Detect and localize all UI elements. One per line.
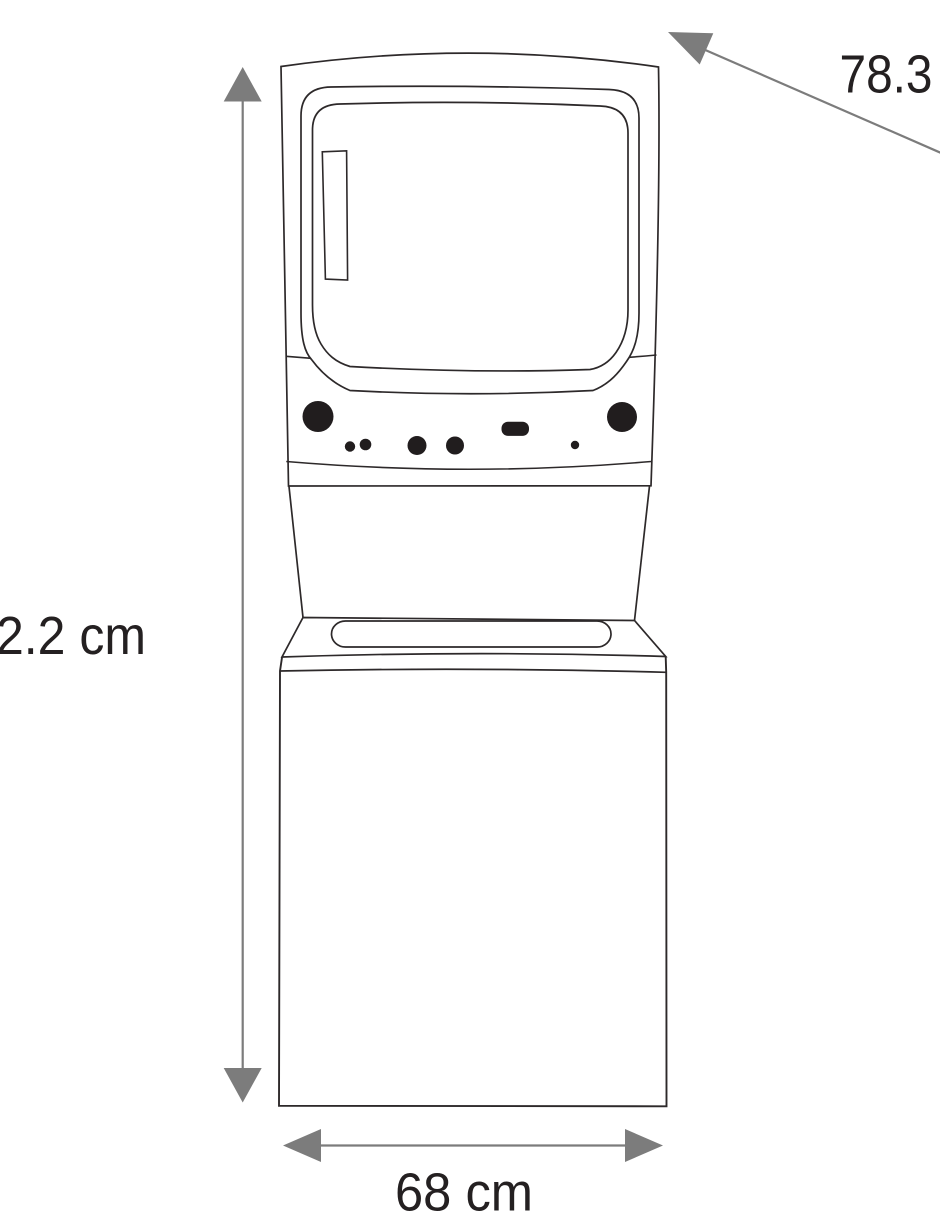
svg-text:68 cm: 68 cm: [395, 1163, 533, 1215]
svg-text:2.2 cm: 2.2 cm: [0, 606, 146, 666]
svg-text:78.3: 78.3: [840, 45, 933, 105]
